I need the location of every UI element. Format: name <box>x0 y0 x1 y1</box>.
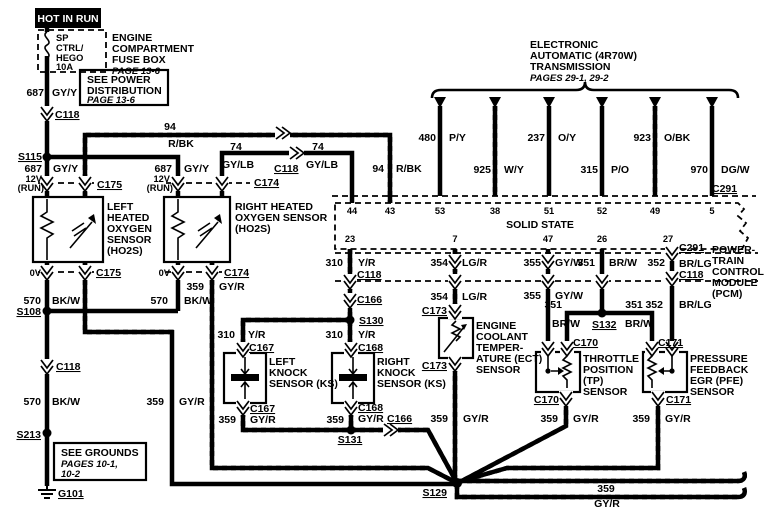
wire-color: DG/W <box>721 164 750 176</box>
pin-number: 27 <box>663 234 673 244</box>
wire-359-thick <box>172 330 458 484</box>
wire-color: BK/W <box>184 295 212 307</box>
wire-num: 94 <box>164 121 176 133</box>
wire-num: 352 <box>647 257 665 269</box>
connector-label: C173 <box>422 305 447 317</box>
wire-num: 359 <box>597 483 615 495</box>
volt-label: 0V <box>159 268 171 278</box>
wire-color: GY/R <box>463 413 489 425</box>
wire-num: 74 <box>312 141 324 153</box>
wire-color: Y/R <box>248 329 266 341</box>
wire-color: P/O <box>611 164 629 176</box>
wire-color: BR/W <box>552 318 580 330</box>
fuse-rating: 10A <box>56 62 73 72</box>
connector-label: C291 <box>679 242 704 254</box>
wire-color: BK/W <box>52 396 80 408</box>
pfe-arrowhead <box>658 367 664 375</box>
connector-label: C173 <box>422 360 447 372</box>
wire-color: W/Y <box>504 164 524 176</box>
connector-label: C171 <box>666 394 691 406</box>
trans-wires-striped <box>495 106 655 196</box>
wire-rho2s-359 <box>212 262 457 483</box>
sensor-name: SENSOR (KS) <box>269 378 338 390</box>
pin-number: 43 <box>385 206 395 216</box>
wire-color: GY/R <box>665 413 691 425</box>
pin-number: 23 <box>345 234 355 244</box>
wire-num: 310 <box>325 329 343 341</box>
ground-label: G101 <box>58 488 84 500</box>
ect-thermistor-icon <box>444 321 464 352</box>
wire-color: R/BK <box>168 138 194 150</box>
pin-number: 52 <box>597 206 607 216</box>
splice-label: S132 <box>592 319 617 331</box>
wire-num: 94 <box>372 163 384 175</box>
wire-color: GY/LB <box>222 159 255 171</box>
wire-num: 359 <box>326 414 344 426</box>
wire-color: Y/R <box>358 257 376 269</box>
fuse-name: SP <box>56 33 68 43</box>
wire-color: R/BK <box>396 163 422 175</box>
pfe-wiper-dot <box>669 368 674 373</box>
splice-s132 <box>598 309 607 318</box>
wire-num: 923 <box>633 132 651 144</box>
module-name: SOLID STATE <box>506 219 574 231</box>
pin-number: 44 <box>347 206 358 216</box>
grounds-title: SEE GROUNDS <box>61 447 139 459</box>
wire-color: LG/R <box>462 257 487 269</box>
trans-title: TRANSMISSION <box>530 61 611 73</box>
pin-number: 47 <box>543 234 553 244</box>
wire-num: 310 <box>217 329 235 341</box>
wire-color: GY/R <box>179 396 205 408</box>
fuse-name: CTRL/ <box>56 43 84 53</box>
wire-color: GY/R <box>358 413 384 425</box>
wire-num: 359 <box>540 413 558 425</box>
wire-num: 355 <box>523 290 541 302</box>
wire-num: 570 <box>23 396 41 408</box>
pin-number: 53 <box>435 206 445 216</box>
wire-color: LG/R <box>462 291 487 303</box>
splice-s213 <box>43 429 52 438</box>
wire-num: 570 <box>150 295 168 307</box>
wire-num: 310 <box>325 257 343 269</box>
wiring-diagram-page: HOT IN RUNSPCTRL/HEGO10AENGINECOMPARTMEN… <box>0 0 768 512</box>
wire-num: 359 <box>632 413 650 425</box>
connector-label: C171 <box>658 337 683 349</box>
wire-num: 354 <box>430 257 448 269</box>
wire-color: GY/Y <box>53 163 78 175</box>
powerdist-page: PAGE 13-6 <box>87 95 136 106</box>
connector-label: C168 <box>358 342 383 354</box>
wire-color: O/Y <box>558 132 576 144</box>
splice-label: S108 <box>16 306 41 318</box>
splice-label: S131 <box>338 434 363 446</box>
trans-page: PAGES 29-1, 29-2 <box>530 73 609 84</box>
right-ks-element <box>339 374 367 381</box>
wire-color: GY/LB <box>306 159 339 171</box>
splice-label: S129 <box>422 487 447 499</box>
sensor-name: SENSOR <box>690 386 735 398</box>
right-ho2s-sensor-icon <box>196 222 218 248</box>
wire-color: BR/W <box>609 257 637 269</box>
connector-label: C166 <box>387 413 412 425</box>
sensor-name: SENSOR <box>583 386 628 398</box>
wire-color: GY/R <box>594 498 620 510</box>
grounds-page: 10-2 <box>61 469 81 480</box>
fuse-icon <box>45 32 49 58</box>
wire-num: 970 <box>690 164 708 176</box>
transmission-brace <box>432 82 738 98</box>
connector-label: C175 <box>96 267 121 279</box>
connector-label: C118 <box>679 269 704 281</box>
fusebox-title: FUSE BOX <box>112 54 166 66</box>
connector-label: C170 <box>534 394 559 406</box>
wire-num: 351 <box>544 299 562 311</box>
left-ks-element <box>231 374 259 381</box>
connector-label: C291 <box>712 183 737 195</box>
wire-color: BR/W <box>625 318 653 330</box>
ground-icon <box>38 484 56 498</box>
volt-label: 0V <box>30 268 42 278</box>
connector-label: C175 <box>97 179 122 191</box>
wire-color: P/Y <box>449 132 466 144</box>
connector-label: C174 <box>224 267 249 279</box>
wire-num: 359 <box>146 396 164 408</box>
volt-label: (RUN) <box>147 183 173 193</box>
connector-label: C167 <box>249 342 274 354</box>
trans-wires-solid <box>440 106 712 196</box>
hot-in-run-label: HOT IN RUN <box>37 13 98 25</box>
wire-num: 687 <box>26 87 44 99</box>
wire-num: 315 <box>580 164 598 176</box>
wire-num: 74 <box>230 141 242 153</box>
connector-label: C118 <box>55 109 80 121</box>
transmission-arrows <box>434 97 718 108</box>
connector-label: C170 <box>573 337 598 349</box>
pcm-name: (PCM) <box>712 288 742 300</box>
pin-number: 26 <box>597 234 607 244</box>
wire-color: BR/LG <box>679 299 712 311</box>
splice-label: S115 <box>18 151 42 163</box>
wire-num: 359 <box>186 281 204 293</box>
volt-label: (RUN) <box>18 183 44 193</box>
pin-number: 5 <box>709 206 714 216</box>
wire-num: 354 <box>430 291 448 303</box>
connector-label: C118 <box>56 361 81 373</box>
sensor-name: SENSOR <box>476 364 521 376</box>
left-ho2s-heater-icon <box>41 199 53 260</box>
splice-s129 <box>452 478 462 488</box>
tp-wiper-dot <box>545 368 550 373</box>
wire-color: GY/R <box>250 414 276 426</box>
wire-color: GY/Y <box>52 87 77 99</box>
wire-num: 480 <box>418 132 436 144</box>
wire-num: 925 <box>473 164 491 176</box>
wire-color: GY/R <box>219 281 245 293</box>
sensor-name: (HO2S) <box>235 223 271 235</box>
wire-num: 355 <box>523 257 541 269</box>
wire-num: 352 <box>645 299 663 311</box>
connector-label: C166 <box>357 294 382 306</box>
pin-number: 49 <box>650 206 660 216</box>
wire-num: 237 <box>527 132 545 144</box>
wire-num: 359 <box>218 414 236 426</box>
connector-label: C118 <box>357 269 382 281</box>
pin-number: 51 <box>544 206 554 216</box>
splice-s130 <box>346 316 355 325</box>
wire-color: Y/R <box>358 329 376 341</box>
pin-number: 38 <box>490 206 500 216</box>
right-ho2s-heater-icon <box>172 199 184 260</box>
wire-color: BK/W <box>52 295 80 307</box>
wire-num: 351 <box>625 299 643 311</box>
splice-s108 <box>43 307 52 316</box>
wire-color: GY/Y <box>184 163 209 175</box>
connector-label: C174 <box>254 177 279 189</box>
left-ho2s-sensor-icon <box>70 222 92 248</box>
wire-color: O/BK <box>664 132 691 144</box>
wiring-diagram: HOT IN RUNSPCTRL/HEGO10AENGINECOMPARTMEN… <box>0 0 768 512</box>
wire-num: 351 <box>577 257 595 269</box>
splice-s115 <box>43 153 52 162</box>
sensor-name: SENSOR (KS) <box>377 378 446 390</box>
splice-label: S213 <box>16 429 41 441</box>
splice-label: S130 <box>359 315 384 327</box>
wire-color: GY/R <box>573 413 599 425</box>
pin-number: 7 <box>452 234 457 244</box>
wire-num: 359 <box>430 413 448 425</box>
sensor-name: (HO2S) <box>107 245 143 257</box>
connector-label: C118 <box>274 163 299 175</box>
